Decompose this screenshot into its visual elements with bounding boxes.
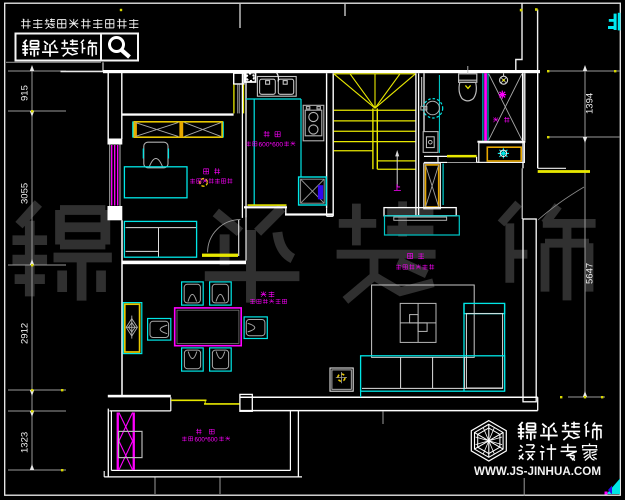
- svg-text:2912: 2912: [20, 323, 31, 344]
- svg-text:1394: 1394: [585, 93, 596, 114]
- svg-text:WWW.JS-JINHUA.COM: WWW.JS-JINHUA.COM: [474, 466, 601, 478]
- svg-text:1323: 1323: [20, 432, 31, 453]
- svg-text:915: 915: [20, 85, 31, 101]
- svg-text:5647: 5647: [585, 263, 596, 284]
- svg-text:600*600: 600*600: [195, 436, 219, 443]
- svg-text:3055: 3055: [20, 183, 31, 204]
- svg-text:600*600: 600*600: [259, 141, 284, 148]
